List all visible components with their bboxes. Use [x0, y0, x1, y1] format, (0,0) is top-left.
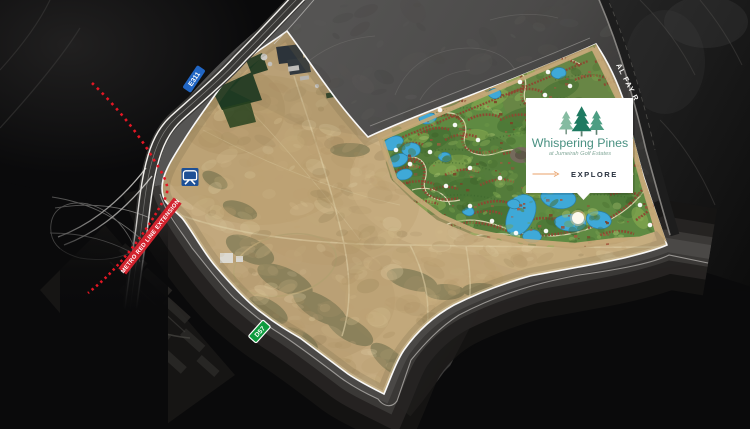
svg-text:at Jumeirah Golf Estates: at Jumeirah Golf Estates — [549, 151, 611, 157]
svg-text:EXPLORE: EXPLORE — [571, 170, 618, 179]
svg-text:Whispering Pines: Whispering Pines — [532, 136, 628, 150]
svg-text:™: ™ — [632, 137, 635, 141]
